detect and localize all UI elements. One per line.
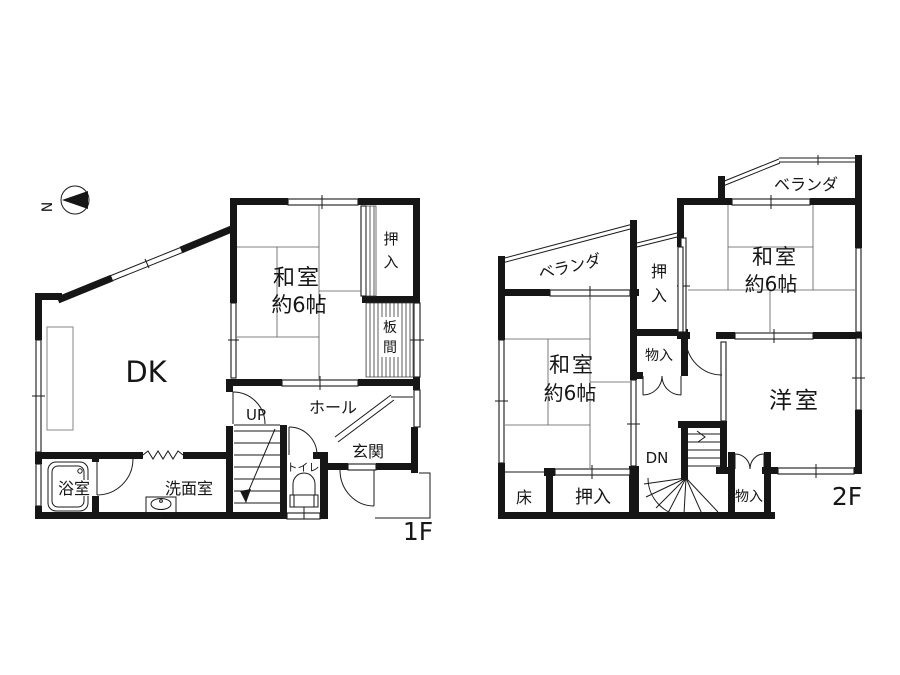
oshiire-center-top-edge bbox=[637, 232, 681, 247]
oshiire-center-char1: 押 bbox=[651, 262, 667, 281]
toilet-door-arc bbox=[289, 427, 317, 455]
genkan-label: 玄関 bbox=[352, 442, 384, 461]
compass-arrow-icon bbox=[62, 191, 88, 209]
accordion-door bbox=[143, 451, 183, 459]
western-room-door-arc bbox=[686, 339, 722, 375]
floor-2f-label: 2F bbox=[832, 482, 862, 511]
washitsu-1f-size: 約6帖 bbox=[271, 293, 326, 317]
washitsu-1f-label: 和室 bbox=[273, 266, 321, 291]
itanoma-char1: 板 bbox=[383, 320, 397, 336]
oshiire-1f-char1: 押 bbox=[383, 230, 398, 248]
oshiire-bottom-label: 押入 bbox=[575, 487, 611, 508]
compass-north-indicator: N bbox=[40, 186, 89, 214]
washroom-label: 洗面室 bbox=[165, 479, 213, 498]
floor-plan-1f: 和室 約6帖 押 入 板 間 DK UP ホール 玄関 トイレ 浴室 洗面室 1… bbox=[32, 195, 433, 546]
floor-plan-2f: ベランダ ベランダ 和室 約6帖 和室 約6帖 押 入 物入 床 押入 DN 物… bbox=[495, 155, 865, 519]
western-room-label: 洋室 bbox=[769, 388, 821, 414]
veranda-left-label: ベランダ bbox=[536, 250, 603, 283]
compass-north-label: N bbox=[40, 202, 56, 212]
tatami-lines-washitsu-1f bbox=[237, 205, 361, 379]
hall-label: ホール bbox=[309, 398, 357, 417]
stairs-down-label: DN bbox=[646, 449, 669, 467]
toilet-label: トイレ bbox=[287, 461, 320, 474]
washitsu-right-label: 和室 bbox=[752, 245, 798, 269]
storage-right-label: 物入 bbox=[735, 489, 763, 505]
bath-door-arc bbox=[97, 459, 133, 495]
tokonoma-label: 床 bbox=[516, 488, 532, 507]
stairs-arrow-icon bbox=[240, 489, 251, 503]
washitsu-right-size: 約6帖 bbox=[745, 272, 798, 296]
veranda-right-label: ベランダ bbox=[774, 175, 838, 194]
oshiire-center-char2: 入 bbox=[651, 286, 667, 305]
stairs-up-label: UP bbox=[246, 406, 266, 424]
dk-label: DK bbox=[125, 355, 167, 389]
oshiire-door-hatch bbox=[366, 206, 376, 296]
stairs-1f bbox=[234, 425, 280, 503]
floor-plan-page: N bbox=[0, 0, 900, 675]
porch-outline bbox=[375, 473, 430, 518]
washitsu-left-size: 約6帖 bbox=[544, 381, 597, 405]
stairs-direction-line bbox=[246, 429, 275, 497]
stairs-start-mark bbox=[697, 431, 705, 442]
floor-1f-label: 1F bbox=[403, 517, 433, 546]
washitsu-left-label: 和室 bbox=[549, 353, 595, 377]
floor-plan-drawing: N bbox=[0, 0, 900, 675]
itanoma-char2: 間 bbox=[383, 340, 397, 356]
labels-2f: ベランダ ベランダ 和室 約6帖 和室 約6帖 押 入 物入 床 押入 DN 物… bbox=[516, 175, 862, 511]
entrance-door-arc bbox=[340, 470, 374, 506]
oshiire-1f-char2: 入 bbox=[383, 253, 398, 271]
toilet-icon bbox=[290, 473, 318, 519]
storage-center-label: 物入 bbox=[645, 348, 673, 364]
kitchen-counter bbox=[47, 327, 73, 430]
bath-label: 浴室 bbox=[58, 479, 90, 498]
